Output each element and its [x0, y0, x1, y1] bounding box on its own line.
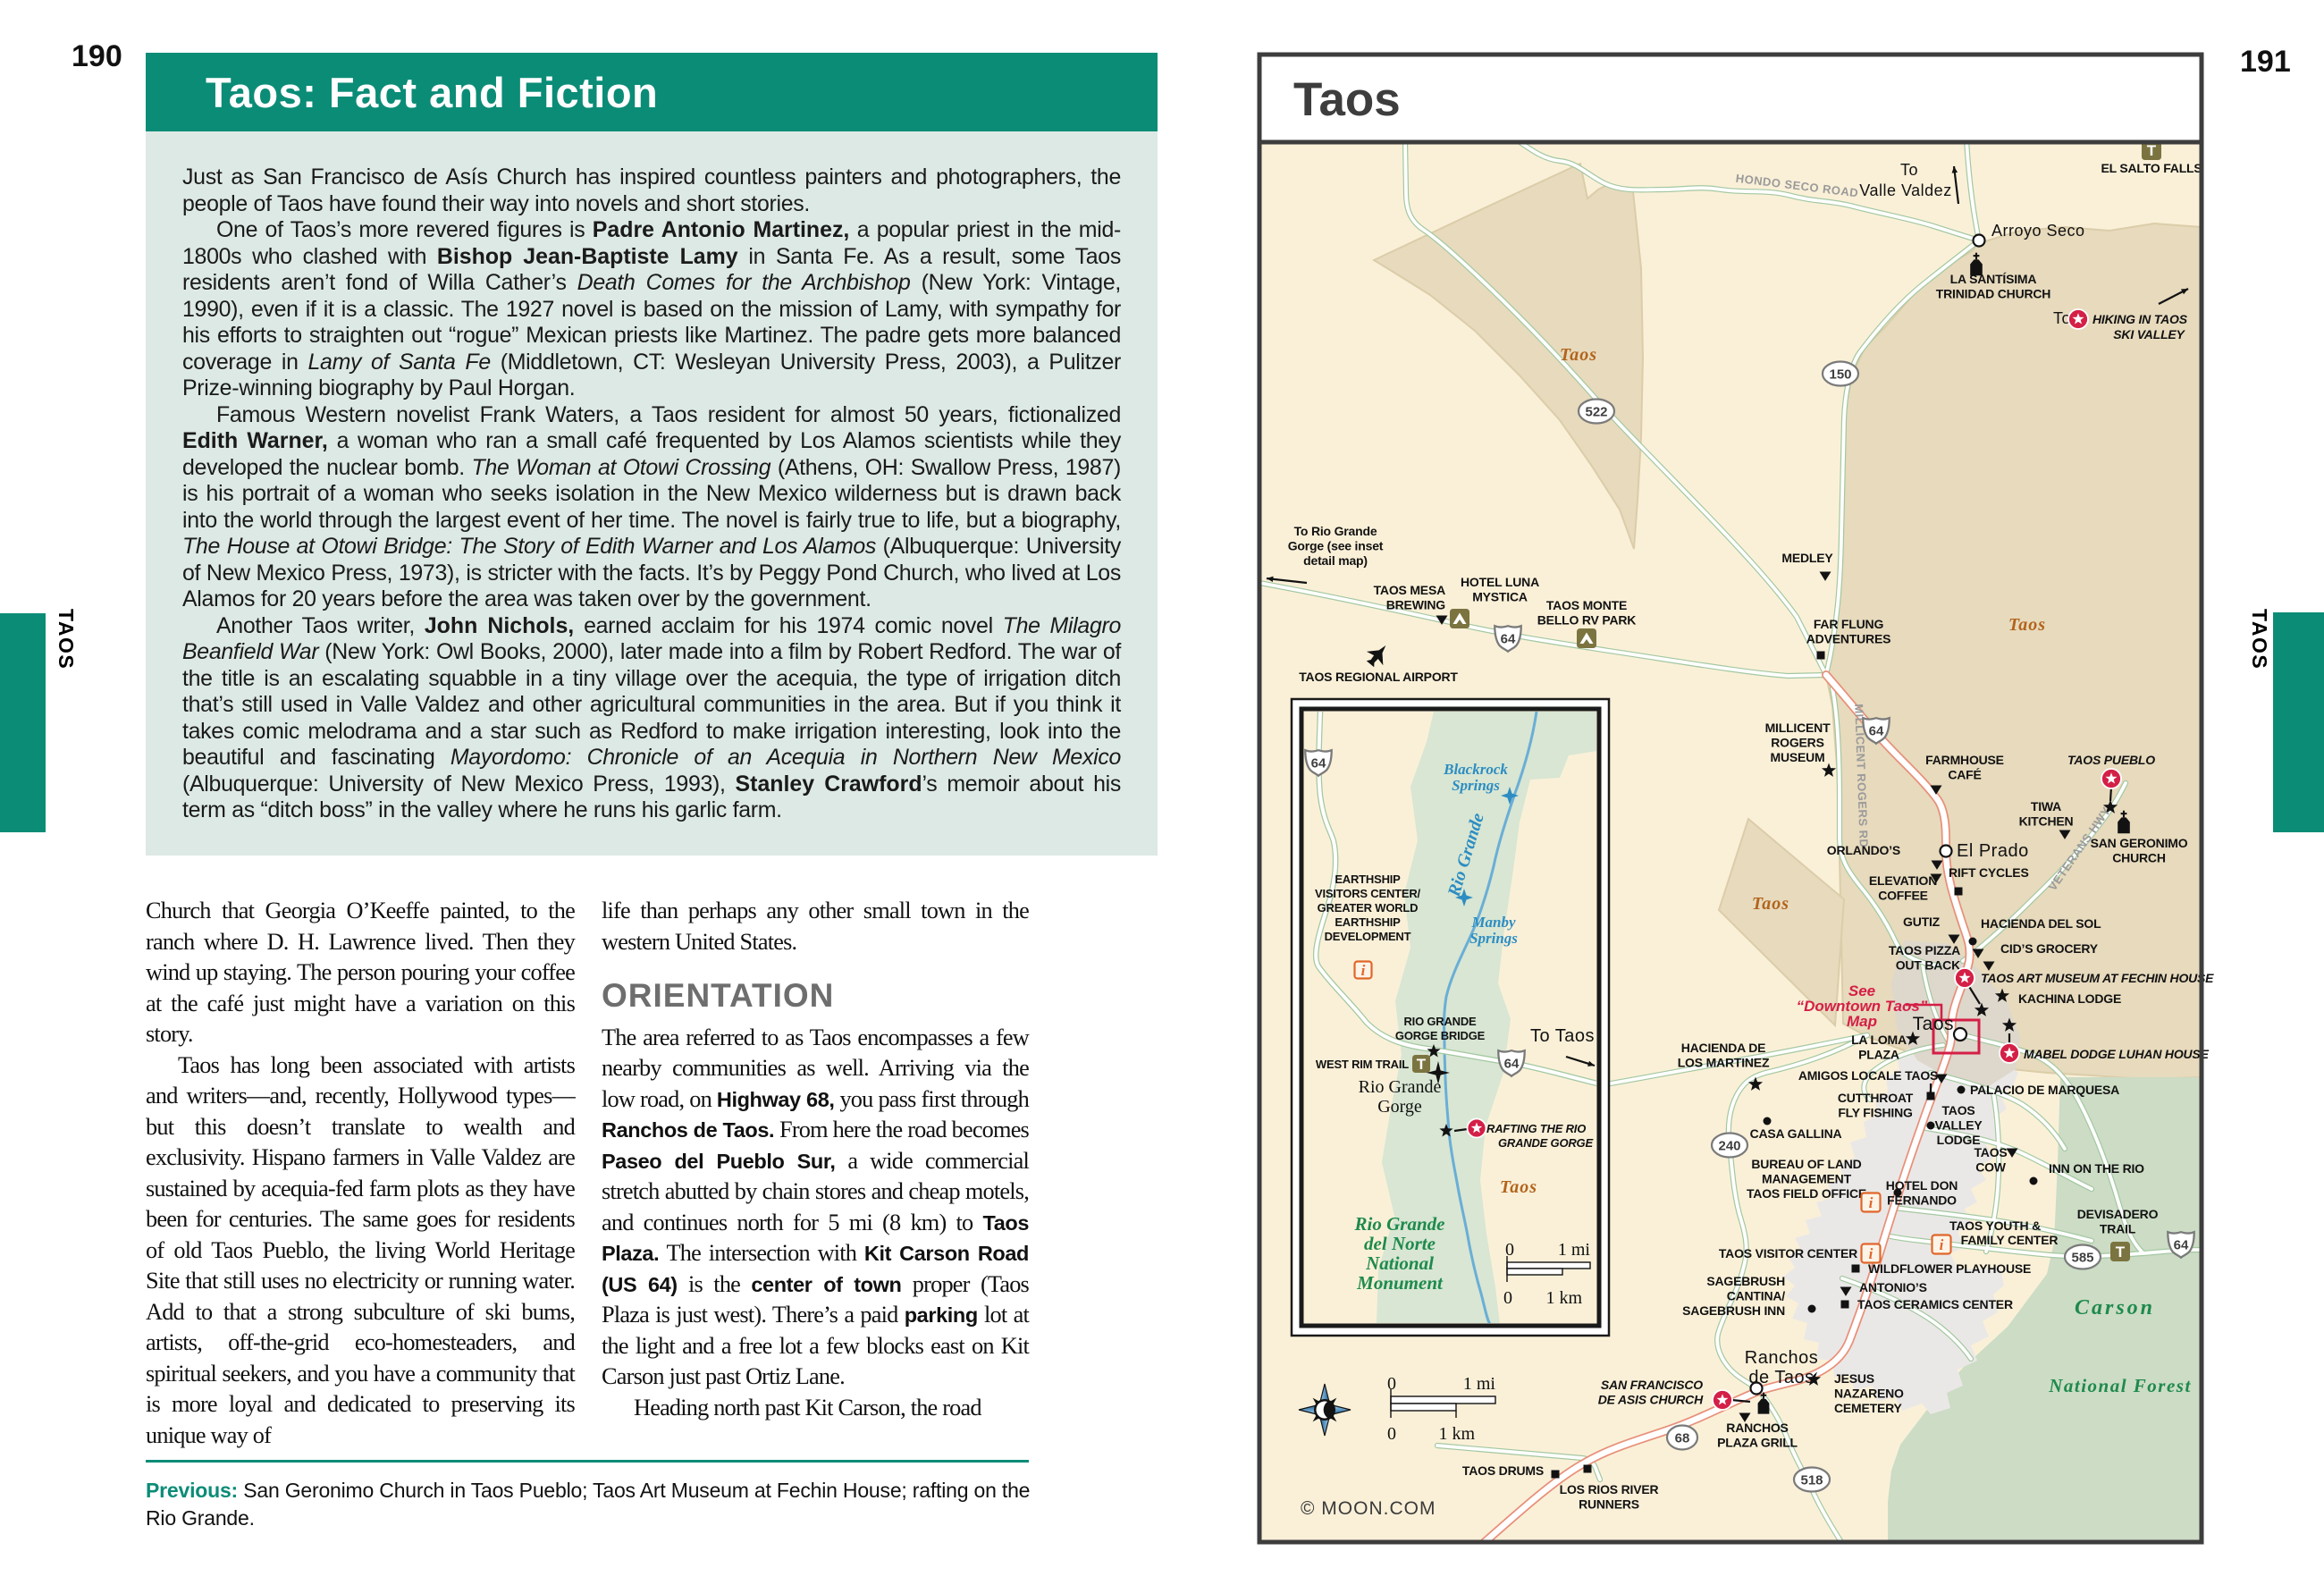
svg-text:FARMHOUSE: FARMHOUSE [1925, 753, 2004, 767]
svg-text:TAOS: TAOS [1974, 1145, 2007, 1159]
svg-text:FAMILY CENTER: FAMILY CENTER [1961, 1233, 2059, 1247]
svg-text:1 mi: 1 mi [1463, 1374, 1496, 1394]
svg-text:Arroyo Seco: Arroyo Seco [1991, 222, 2085, 240]
svg-text:Taos: Taos [2008, 615, 2046, 635]
svg-text:Ranchos: Ranchos [1745, 1348, 1818, 1368]
svg-text:SKI VALLEY: SKI VALLEY [2113, 327, 2185, 341]
svg-text:RUNNERS: RUNNERS [1579, 1497, 1639, 1512]
svg-text:TAOS VISITOR CENTER: TAOS VISITOR CENTER [1719, 1246, 1857, 1260]
svg-text:del Norte: del Norte [1364, 1233, 1436, 1254]
svg-text:MILLICENT: MILLICENT [1765, 721, 1831, 735]
svg-text:DE ASIS CHURCH: DE ASIS CHURCH [1598, 1393, 1704, 1407]
svg-text:GREATER WORLD: GREATER WORLD [1318, 901, 1419, 915]
svg-text:MYSTICA: MYSTICA [1472, 590, 1528, 604]
svg-text:LOS MARTINEZ: LOS MARTINEZ [1678, 1056, 1770, 1070]
svg-text:PALACIO DE MARQUESA: PALACIO DE MARQUESA [1970, 1083, 2119, 1097]
svg-text:TAOS PIZZA: TAOS PIZZA [1889, 943, 1960, 957]
svg-text:585: 585 [2071, 1251, 2093, 1266]
svg-text:0: 0 [1387, 1424, 1396, 1444]
svg-text:WEST RIM TRAIL: WEST RIM TRAIL [1316, 1058, 1409, 1071]
svg-text:Taos: Taos [1752, 894, 1789, 914]
svg-text:i: i [1869, 1194, 1874, 1211]
svg-text:CAFÉ: CAFÉ [1948, 768, 1981, 782]
svg-text:SAGEBRUSH: SAGEBRUSH [1706, 1274, 1785, 1288]
svg-text:CHURCH: CHURCH [2112, 851, 2166, 865]
svg-text:RIFT CYCLES: RIFT CYCLES [1949, 865, 2029, 880]
svg-text:Carson: Carson [2075, 1296, 2155, 1319]
svg-text:PLAZA GRILL: PLAZA GRILL [1717, 1436, 1798, 1450]
svg-text:RAFTING THE RIO: RAFTING THE RIO [1486, 1122, 1586, 1135]
svg-text:TAOS FIELD OFFICE: TAOS FIELD OFFICE [1747, 1186, 1866, 1201]
svg-text:Taos: Taos [1293, 73, 1401, 126]
svg-text:CANTINA/: CANTINA/ [1727, 1289, 1786, 1303]
svg-text:MUSEUM: MUSEUM [1770, 750, 1824, 764]
svg-text:1 km: 1 km [1545, 1288, 1582, 1308]
svg-text:TAOS MONTE: TAOS MONTE [1546, 598, 1627, 612]
svg-text:TIWA: TIWA [2031, 799, 2061, 814]
svg-text:ORLANDO’S: ORLANDO’S [1827, 843, 1900, 857]
svg-text:240: 240 [1718, 1139, 1740, 1154]
svg-text:522: 522 [1585, 405, 1607, 420]
svg-text:LA SANTÍSIMA: LA SANTÍSIMA [1950, 272, 2037, 286]
svg-text:Gorge (see inset: Gorge (see inset [1288, 539, 1384, 553]
svg-text:0: 0 [1503, 1288, 1512, 1308]
svg-text:CASA GALLINA: CASA GALLINA [1750, 1126, 1842, 1141]
svg-text:Rio Grande: Rio Grande [1354, 1213, 1445, 1235]
svg-text:SAN FRANCISCO: SAN FRANCISCO [1601, 1378, 1703, 1392]
svg-text:HOTEL LUNA: HOTEL LUNA [1461, 575, 1539, 589]
svg-text:64: 64 [1504, 1057, 1520, 1072]
svg-text:VISITORS CENTER/: VISITORS CENTER/ [1315, 887, 1421, 900]
svg-text:Blackrock: Blackrock [1443, 761, 1508, 778]
svg-text:National Forest: National Forest [2048, 1375, 2192, 1396]
svg-text:TAOS PUEBLO: TAOS PUEBLO [2067, 753, 2155, 767]
svg-text:518: 518 [1800, 1473, 1823, 1488]
svg-text:COW: COW [1975, 1160, 2007, 1175]
svg-text:ELEVATION: ELEVATION [1869, 873, 1937, 888]
svg-text:FAR FLUNG: FAR FLUNG [1814, 617, 1884, 631]
svg-text:Valle Valdez: Valle Valdez [1859, 181, 1951, 199]
svg-text:Rio Grande: Rio Grande [1359, 1077, 1442, 1097]
svg-text:TAOS ART MUSEUM AT FECHIN HOUS: TAOS ART MUSEUM AT FECHIN HOUSE [1981, 971, 2214, 985]
svg-text:TAOS YOUTH &: TAOS YOUTH & [1949, 1218, 2041, 1233]
svg-text:LOS RIOS RIVER: LOS RIOS RIVER [1560, 1482, 1659, 1496]
svg-text:EARTHSHIP: EARTHSHIP [1335, 873, 1401, 886]
svg-text:FLY FISHING: FLY FISHING [1838, 1106, 1913, 1120]
svg-text:i: i [1361, 962, 1366, 979]
svg-text:Taos: Taos [1560, 345, 1597, 365]
svg-text:National: National [1365, 1252, 1434, 1274]
svg-text:Taos: Taos [1500, 1177, 1537, 1197]
svg-text:KACHINA LODGE: KACHINA LODGE [2018, 991, 2121, 1006]
svg-text:El Prado: El Prado [1957, 841, 2029, 861]
svg-text:VALLEY: VALLEY [1935, 1118, 1983, 1133]
svg-text:TAOS CERAMICS CENTER: TAOS CERAMICS CENTER [1857, 1297, 2013, 1311]
svg-text:TAOS REGIONAL AIRPORT: TAOS REGIONAL AIRPORT [1299, 670, 1458, 684]
svg-text:TAOS MESA: TAOS MESA [1374, 583, 1445, 597]
svg-text:JESUS: JESUS [1834, 1371, 1874, 1386]
svg-text:DEVELOPMENT: DEVELOPMENT [1325, 930, 1411, 943]
svg-text:BELLO RV PARK: BELLO RV PARK [1537, 613, 1637, 628]
svg-text:RIO GRANDE: RIO GRANDE [1403, 1015, 1477, 1028]
svg-text:GRANDE GORGE: GRANDE GORGE [1498, 1136, 1593, 1150]
svg-text:BUREAU OF LAND: BUREAU OF LAND [1751, 1157, 1861, 1171]
svg-text:HACIENDA DE: HACIENDA DE [1681, 1041, 1766, 1055]
svg-text:TRAIL: TRAIL [2100, 1222, 2136, 1236]
svg-text:64: 64 [1869, 724, 1884, 739]
svg-text:OUT BACK: OUT BACK [1896, 958, 1960, 973]
svg-text:SAGEBRUSH INN: SAGEBRUSH INN [1682, 1303, 1785, 1318]
svg-text:1 mi: 1 mi [1558, 1240, 1591, 1260]
svg-text:i: i [1869, 1245, 1874, 1262]
svg-text:DEVISADERO: DEVISADERO [2077, 1207, 2159, 1221]
svg-text:TAOS: TAOS [1941, 1103, 1975, 1117]
svg-text:CEMETERY: CEMETERY [1834, 1401, 1903, 1415]
svg-text:MABEL DODGE LUHAN HOUSE: MABEL DODGE LUHAN HOUSE [2024, 1047, 2210, 1061]
svg-text:Manby: Manby [1470, 914, 1516, 931]
svg-text:T: T [1417, 1056, 1427, 1073]
svg-text:64: 64 [2174, 1238, 2189, 1253]
svg-text:NAZARENO: NAZARENO [1834, 1387, 1904, 1401]
svg-text:64: 64 [1311, 756, 1326, 771]
svg-text:CID’S GROCERY: CID’S GROCERY [2000, 941, 2099, 956]
svg-text:HACIENDA DEL SOL: HACIENDA DEL SOL [1981, 916, 2101, 931]
svg-text:1 km: 1 km [1438, 1424, 1475, 1444]
svg-text:68: 68 [1675, 1431, 1690, 1446]
svg-text:MEDLEY: MEDLEY [1781, 551, 1833, 565]
svg-text:ROGERS: ROGERS [1771, 736, 1823, 750]
svg-text:PLAZA: PLAZA [1858, 1048, 1899, 1062]
svg-text:Springs: Springs [1469, 930, 1518, 947]
svg-text:© MOON.COM: © MOON.COM [1301, 1498, 1436, 1519]
svg-text:Monument: Monument [1356, 1272, 1444, 1294]
svg-text:INN ON THE RIO: INN ON THE RIO [2049, 1161, 2144, 1176]
svg-text:To: To [1900, 161, 1918, 179]
svg-text:LA LOMA: LA LOMA [1851, 1033, 1907, 1047]
svg-text:Map: Map [1847, 1013, 1877, 1030]
svg-text:To Taos: To Taos [1530, 1026, 1595, 1046]
svg-text:TRINIDAD CHURCH: TRINIDAD CHURCH [1936, 287, 2051, 301]
svg-text:AMIGOS LOCALE TAOS: AMIGOS LOCALE TAOS [1798, 1068, 1938, 1083]
svg-text:CUTTHROAT: CUTTHROAT [1838, 1091, 1914, 1105]
svg-text:RANCHOS: RANCHOS [1726, 1421, 1788, 1435]
svg-text:KITCHEN: KITCHEN [2019, 814, 2074, 829]
svg-text:SAN GERONIMO: SAN GERONIMO [2091, 836, 2188, 850]
svg-text:64: 64 [1501, 632, 1516, 647]
svg-text:150: 150 [1829, 367, 1851, 383]
svg-text:T: T [2147, 142, 2157, 159]
svg-text:ANTONIO’S: ANTONIO’S [1859, 1280, 1927, 1294]
svg-text:GUTIZ: GUTIZ [1903, 915, 1941, 929]
svg-text:MANAGEMENT: MANAGEMENT [1762, 1172, 1852, 1186]
svg-text:COFFEE: COFFEE [1878, 889, 1928, 903]
svg-text:Taos: Taos [1913, 1014, 1954, 1034]
svg-text:Springs: Springs [1452, 777, 1500, 794]
svg-text:i: i [1940, 1236, 1944, 1253]
svg-text:TAOS DRUMS: TAOS DRUMS [1462, 1463, 1544, 1478]
svg-text:HIKING IN TAOS: HIKING IN TAOS [2092, 312, 2188, 326]
svg-text:0: 0 [1387, 1374, 1396, 1394]
svg-text:T: T [2116, 1244, 2126, 1260]
svg-text:Gorge: Gorge [1377, 1097, 1422, 1117]
svg-text:BREWING: BREWING [1386, 598, 1446, 612]
svg-text:detail map): detail map) [1303, 553, 1368, 568]
svg-text:ADVENTURES: ADVENTURES [1806, 632, 1890, 646]
svg-text:EL SALTO FALLS: EL SALTO FALLS [2101, 161, 2202, 175]
svg-text:GORGE BRIDGE: GORGE BRIDGE [1395, 1029, 1486, 1042]
svg-text:EARTHSHIP: EARTHSHIP [1335, 915, 1401, 929]
svg-text:To Rio Grande: To Rio Grande [1294, 524, 1377, 538]
svg-text:WILDFLOWER PLAYHOUSE: WILDFLOWER PLAYHOUSE [1868, 1261, 2031, 1276]
